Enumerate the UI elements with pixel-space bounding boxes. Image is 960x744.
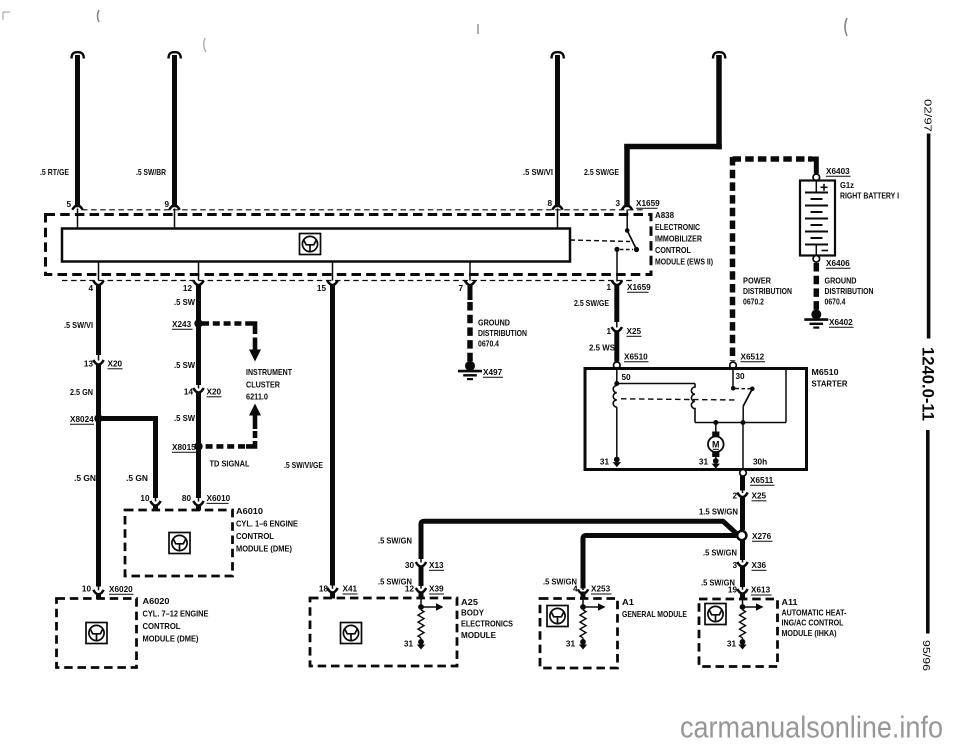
svg-text:X243: X243 — [172, 320, 192, 329]
svg-text:MODULE: MODULE — [461, 631, 497, 640]
svg-text:8: 8 — [547, 199, 552, 208]
svg-text:CONTROL: CONTROL — [143, 622, 181, 631]
svg-text:X6510: X6510 — [624, 353, 648, 362]
svg-text:12: 12 — [183, 284, 193, 293]
svg-text:X253: X253 — [591, 585, 611, 594]
svg-text:19: 19 — [728, 586, 738, 595]
svg-text:31: 31 — [566, 640, 576, 649]
svg-text:X6511: X6511 — [750, 476, 774, 485]
svg-text:.5 SW: .5 SW — [174, 361, 195, 370]
svg-text:A11: A11 — [782, 598, 798, 607]
svg-text:X6402: X6402 — [829, 318, 853, 327]
svg-text:X36: X36 — [752, 561, 767, 570]
svg-text:.5 GN: .5 GN — [126, 474, 148, 483]
svg-text:X25: X25 — [627, 327, 642, 336]
svg-text:10: 10 — [140, 494, 150, 503]
svg-text:G1z: G1z — [840, 181, 854, 190]
svg-text:2: 2 — [732, 492, 737, 501]
svg-text:M: M — [712, 440, 720, 450]
svg-text:DISTRIBUTION: DISTRIBUTION — [825, 287, 874, 296]
svg-text:0670.4: 0670.4 — [478, 340, 499, 349]
svg-text:18: 18 — [319, 585, 329, 594]
svg-text:INSTRUMENT: INSTRUMENT — [246, 368, 292, 377]
svg-text:10: 10 — [82, 585, 92, 594]
svg-text:MODULE (EWS II): MODULE (EWS II) — [655, 257, 713, 266]
svg-text:X6010: X6010 — [207, 494, 231, 503]
svg-text:31: 31 — [600, 458, 610, 467]
svg-text:6211.0: 6211.0 — [246, 393, 268, 402]
svg-text:0670.4: 0670.4 — [825, 298, 846, 307]
svg-text:1240.0-11: 1240.0-11 — [919, 347, 937, 421]
svg-text:1.5 SW/GN: 1.5 SW/GN — [699, 508, 738, 517]
svg-text:2.5 WS: 2.5 WS — [589, 344, 616, 353]
svg-text:GENERAL MODULE: GENERAL MODULE — [622, 610, 687, 619]
svg-text:X25: X25 — [752, 492, 767, 501]
svg-text:CONTROL: CONTROL — [236, 532, 274, 541]
svg-text:.5 SW/BR: .5 SW/BR — [136, 168, 166, 177]
svg-text:2.5 SW/GE: 2.5 SW/GE — [584, 168, 619, 177]
svg-text:7: 7 — [458, 284, 463, 293]
svg-text:A25: A25 — [461, 598, 478, 607]
svg-text:4: 4 — [88, 284, 93, 293]
svg-text:X276: X276 — [752, 532, 772, 541]
svg-text:.5 RT/GE: .5 RT/GE — [40, 168, 69, 177]
svg-text:12: 12 — [405, 585, 415, 594]
svg-text:1: 1 — [606, 283, 611, 292]
svg-text:IMMOBILIZER: IMMOBILIZER — [655, 234, 702, 243]
svg-text:.5 SW/VI: .5 SW/VI — [523, 168, 553, 177]
svg-text:X6512: X6512 — [741, 353, 765, 362]
svg-text:RIGHT BATTERY I: RIGHT BATTERY I — [840, 192, 899, 201]
svg-text:13: 13 — [84, 360, 94, 369]
svg-text:A838: A838 — [655, 211, 674, 220]
svg-text:CYL. 1–6 ENGINE: CYL. 1–6 ENGINE — [236, 520, 298, 529]
svg-text:95/96: 95/96 — [920, 640, 932, 671]
svg-text:X39: X39 — [429, 585, 444, 594]
svg-text:BODY: BODY — [461, 609, 485, 618]
svg-text:80: 80 — [182, 494, 192, 503]
svg-text:X6403: X6403 — [826, 167, 850, 176]
svg-text:DISTRIBUTION: DISTRIBUTION — [743, 287, 792, 296]
svg-text:DISTRIBUTION: DISTRIBUTION — [478, 329, 527, 338]
svg-text:M6510: M6510 — [812, 368, 839, 377]
svg-text:X8024: X8024 — [70, 415, 94, 424]
svg-text:.5 SW/VI/GE: .5 SW/VI/GE — [284, 461, 323, 470]
svg-text:CYL. 7–12 ENGINE: CYL. 7–12 ENGINE — [143, 610, 209, 619]
svg-text:STARTER: STARTER — [812, 380, 848, 389]
svg-text:.5 SW: .5 SW — [174, 414, 195, 423]
svg-text:.5 SW/VI: .5 SW/VI — [64, 321, 93, 330]
svg-text:30: 30 — [736, 372, 746, 381]
svg-text:5: 5 — [66, 200, 71, 209]
svg-text:15: 15 — [317, 284, 327, 293]
svg-text:ING/AC CONTROL: ING/AC CONTROL — [782, 619, 844, 628]
svg-text:X41: X41 — [343, 585, 358, 594]
svg-text:TD SIGNAL: TD SIGNAL — [210, 460, 250, 469]
svg-text:0670.2: 0670.2 — [743, 298, 764, 307]
svg-text:X6020: X6020 — [109, 585, 133, 594]
svg-text:50: 50 — [622, 373, 632, 382]
svg-text:POWER: POWER — [743, 277, 771, 286]
svg-text:GROUND: GROUND — [478, 319, 510, 328]
svg-text:A6010: A6010 — [236, 507, 263, 516]
svg-text:X613: X613 — [751, 586, 771, 595]
svg-text:CONTROL: CONTROL — [655, 246, 691, 255]
svg-text:.5 GN: .5 GN — [74, 474, 96, 483]
svg-text:X1659: X1659 — [636, 199, 660, 208]
svg-text:31: 31 — [727, 640, 737, 649]
svg-text:MODULE (DME): MODULE (DME) — [143, 635, 199, 644]
svg-text:30h: 30h — [753, 458, 767, 467]
svg-text:X8015: X8015 — [172, 443, 196, 452]
svg-text:3: 3 — [615, 199, 620, 208]
svg-text:X6406: X6406 — [826, 259, 850, 268]
svg-text:A1: A1 — [622, 598, 635, 607]
svg-text:carmanualsonline.info: carmanualsonline.info — [680, 710, 943, 744]
svg-text:X13: X13 — [429, 561, 444, 570]
svg-text:X20: X20 — [207, 388, 222, 397]
svg-text:.5 SW/GN: .5 SW/GN — [703, 549, 737, 558]
svg-text:.5 SW/GN: .5 SW/GN — [378, 537, 412, 546]
svg-text:A6020: A6020 — [143, 597, 170, 606]
svg-text:X20: X20 — [108, 360, 123, 369]
svg-text:X1659: X1659 — [627, 283, 651, 292]
svg-text:4: 4 — [573, 585, 578, 594]
svg-text:ELECTRONIC: ELECTRONIC — [655, 223, 700, 232]
svg-text:ELECTRONICS: ELECTRONICS — [461, 620, 513, 629]
svg-text:GROUND: GROUND — [825, 277, 857, 286]
svg-text:AUTOMATIC HEAT-: AUTOMATIC HEAT- — [782, 608, 847, 617]
svg-text:MODULE (IHKA): MODULE (IHKA) — [782, 629, 837, 638]
svg-text:1: 1 — [606, 327, 611, 336]
svg-text:.5 SW: .5 SW — [174, 298, 195, 307]
svg-text:2.5 SW/GE: 2.5 SW/GE — [574, 299, 609, 308]
svg-text:9: 9 — [164, 200, 169, 209]
svg-text:CLUSTER: CLUSTER — [246, 381, 280, 390]
svg-text:02/97: 02/97 — [921, 99, 933, 132]
svg-text:30: 30 — [405, 561, 415, 570]
svg-text:31: 31 — [404, 640, 414, 649]
svg-text:14: 14 — [184, 388, 194, 397]
svg-text:2.5 GN: 2.5 GN — [70, 388, 93, 397]
svg-text:MODULE (DME): MODULE (DME) — [236, 545, 292, 554]
svg-text:31: 31 — [699, 458, 709, 467]
svg-text:3: 3 — [732, 561, 737, 570]
svg-text:X497: X497 — [483, 368, 503, 377]
